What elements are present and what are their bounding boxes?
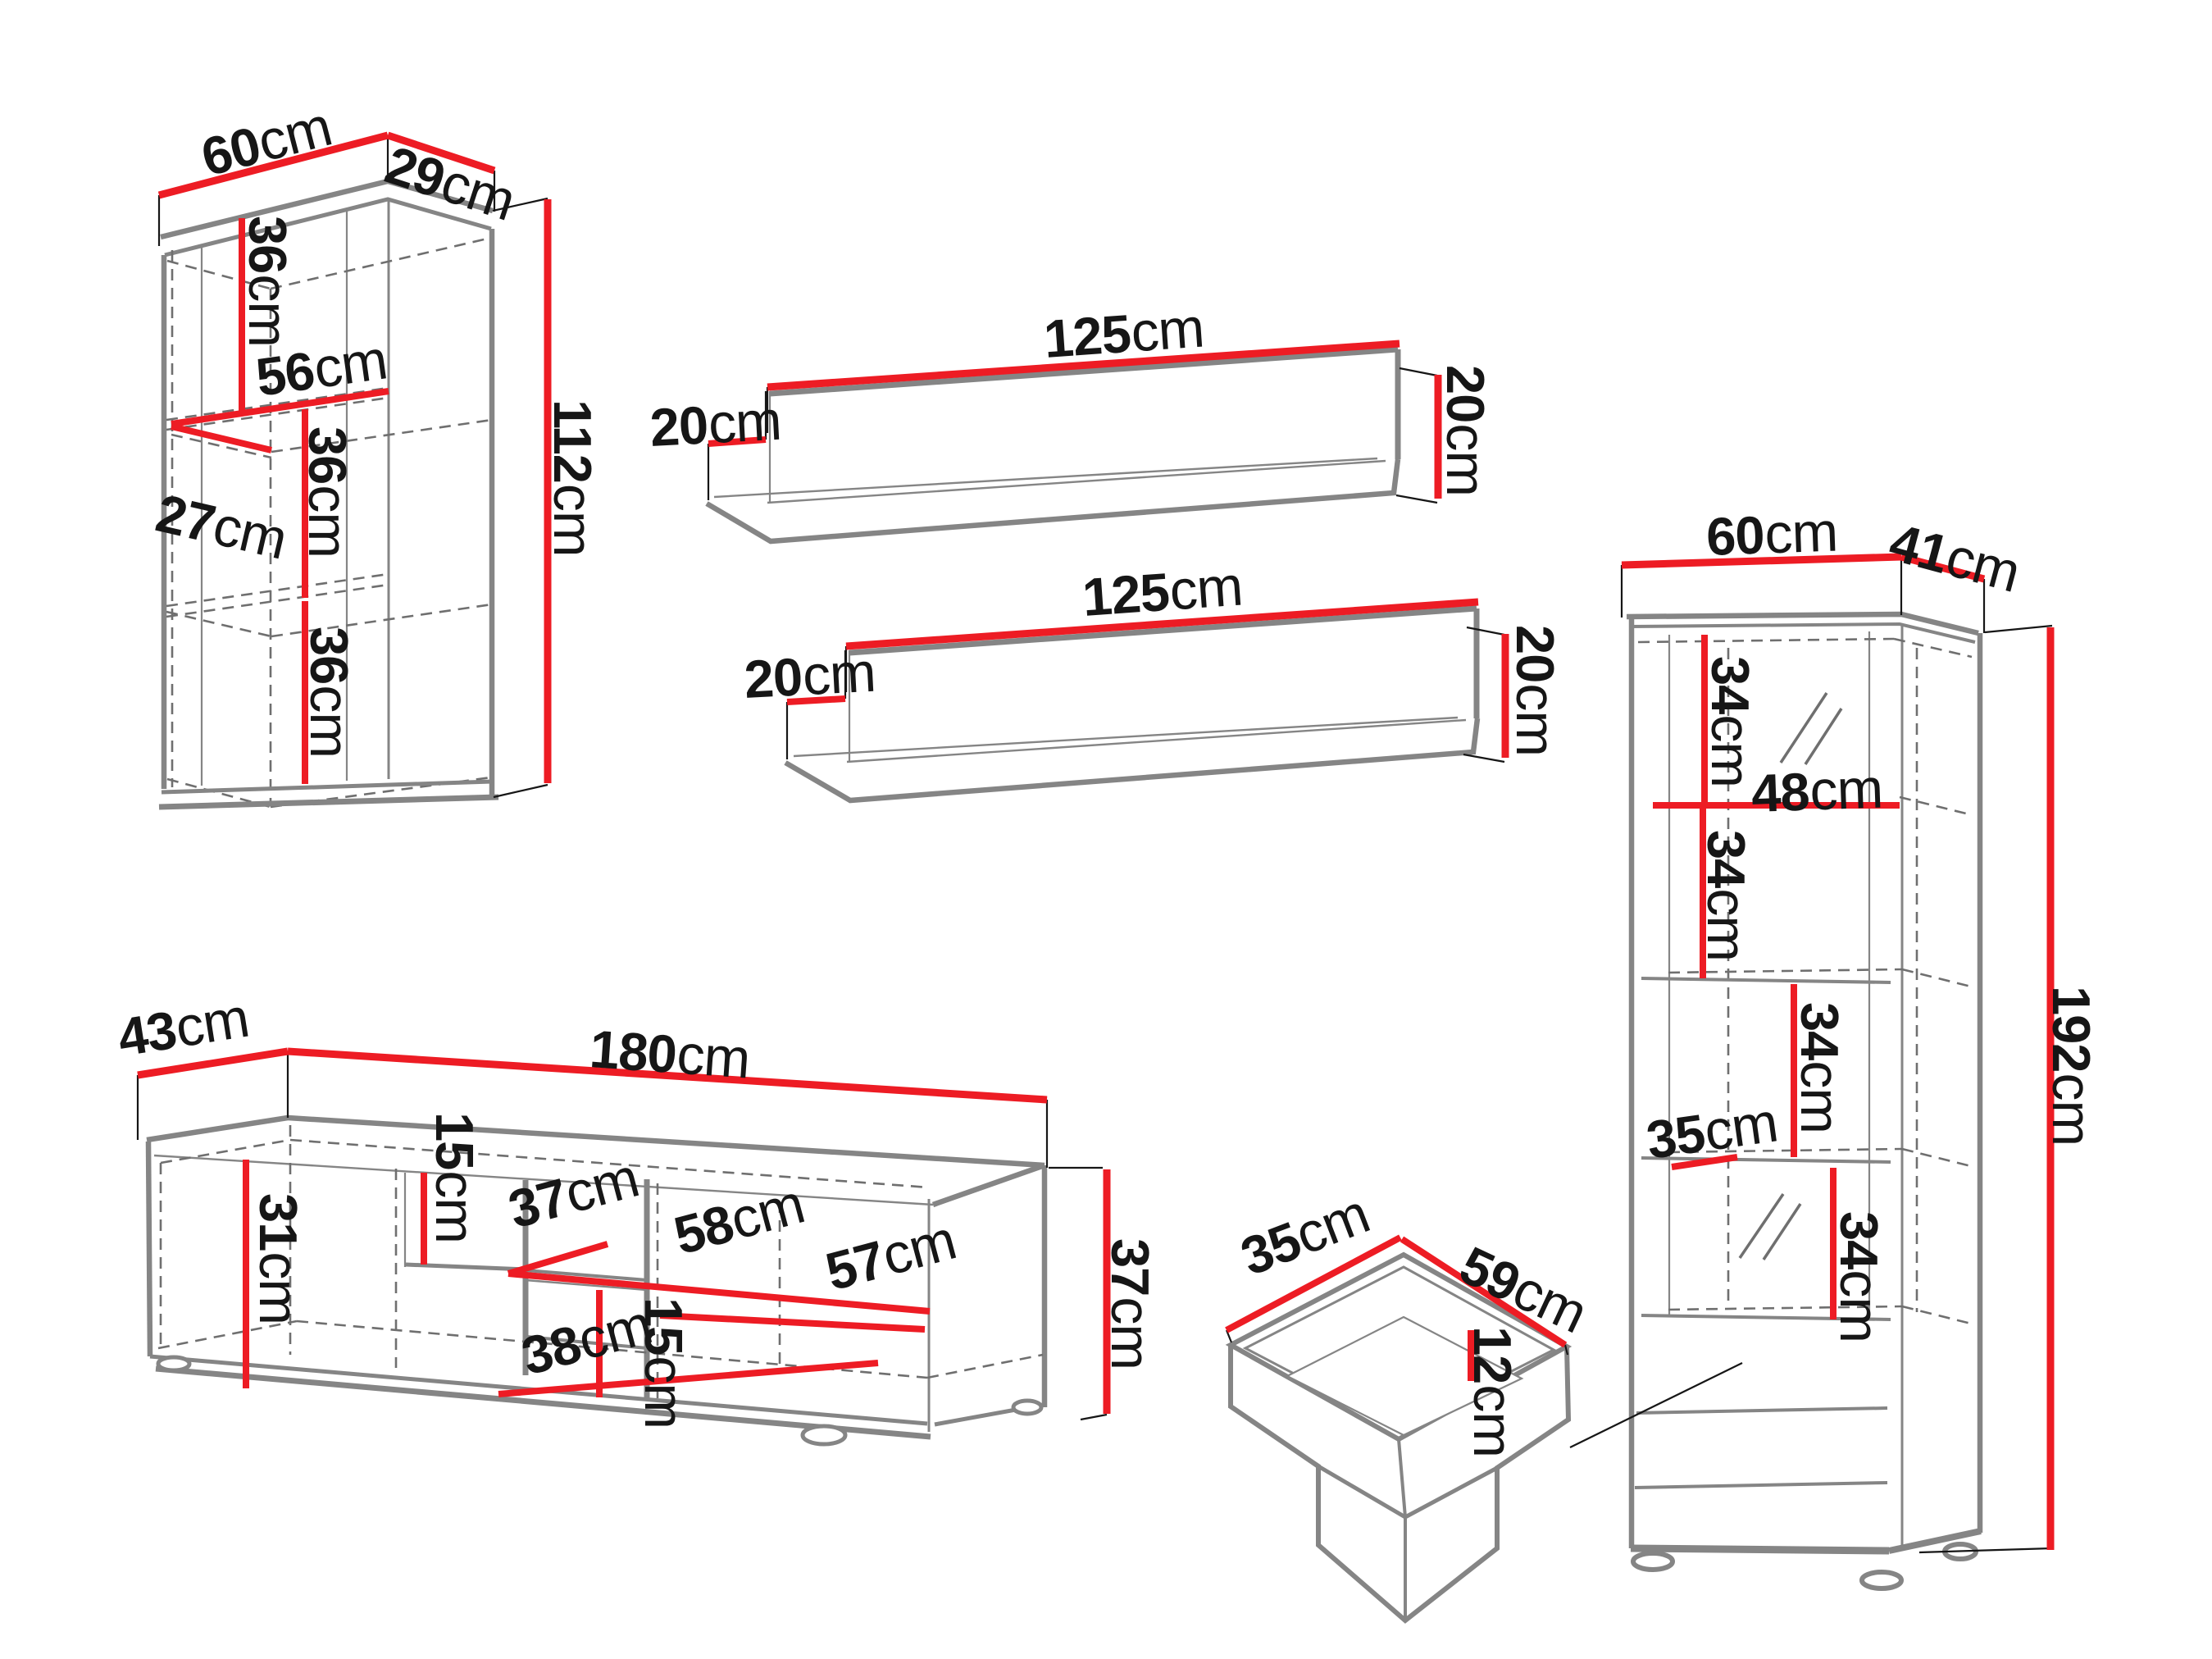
svg-text:20cm: 20cm: [1435, 365, 1497, 496]
svg-text:125cm: 125cm: [1042, 297, 1206, 370]
svg-text:31cm: 31cm: [248, 1193, 310, 1324]
svg-text:12cm: 12cm: [1462, 1326, 1524, 1457]
svg-text:112cm: 112cm: [542, 399, 604, 557]
svg-text:41cm: 41cm: [1883, 510, 2026, 604]
svg-text:125cm: 125cm: [1081, 555, 1245, 628]
svg-text:37cm: 37cm: [502, 1146, 644, 1241]
svg-text:36cm: 36cm: [298, 627, 361, 758]
svg-text:58cm: 58cm: [667, 1173, 810, 1267]
svg-text:48cm: 48cm: [1750, 757, 1884, 824]
svg-text:57cm: 57cm: [819, 1209, 962, 1303]
svg-text:36cm: 36cm: [237, 216, 299, 347]
svg-text:60cm: 60cm: [195, 95, 338, 189]
svg-text:36cm: 36cm: [297, 426, 359, 558]
svg-text:60cm: 60cm: [1705, 500, 1839, 567]
svg-text:20cm: 20cm: [743, 641, 877, 710]
svg-text:37cm: 37cm: [1099, 1238, 1162, 1370]
svg-text:34cm: 34cm: [1789, 1002, 1851, 1133]
svg-text:34cm: 34cm: [1828, 1211, 1891, 1342]
svg-text:34cm: 34cm: [1695, 830, 1758, 961]
svg-text:35cm: 35cm: [1232, 1183, 1377, 1288]
svg-text:20cm: 20cm: [1504, 625, 1567, 756]
svg-text:180cm: 180cm: [588, 1017, 752, 1090]
svg-text:15cm: 15cm: [633, 1297, 695, 1429]
svg-text:15cm: 15cm: [424, 1112, 486, 1243]
svg-text:20cm: 20cm: [649, 390, 783, 458]
svg-text:43cm: 43cm: [113, 987, 253, 1069]
svg-text:192cm: 192cm: [2041, 986, 2103, 1146]
